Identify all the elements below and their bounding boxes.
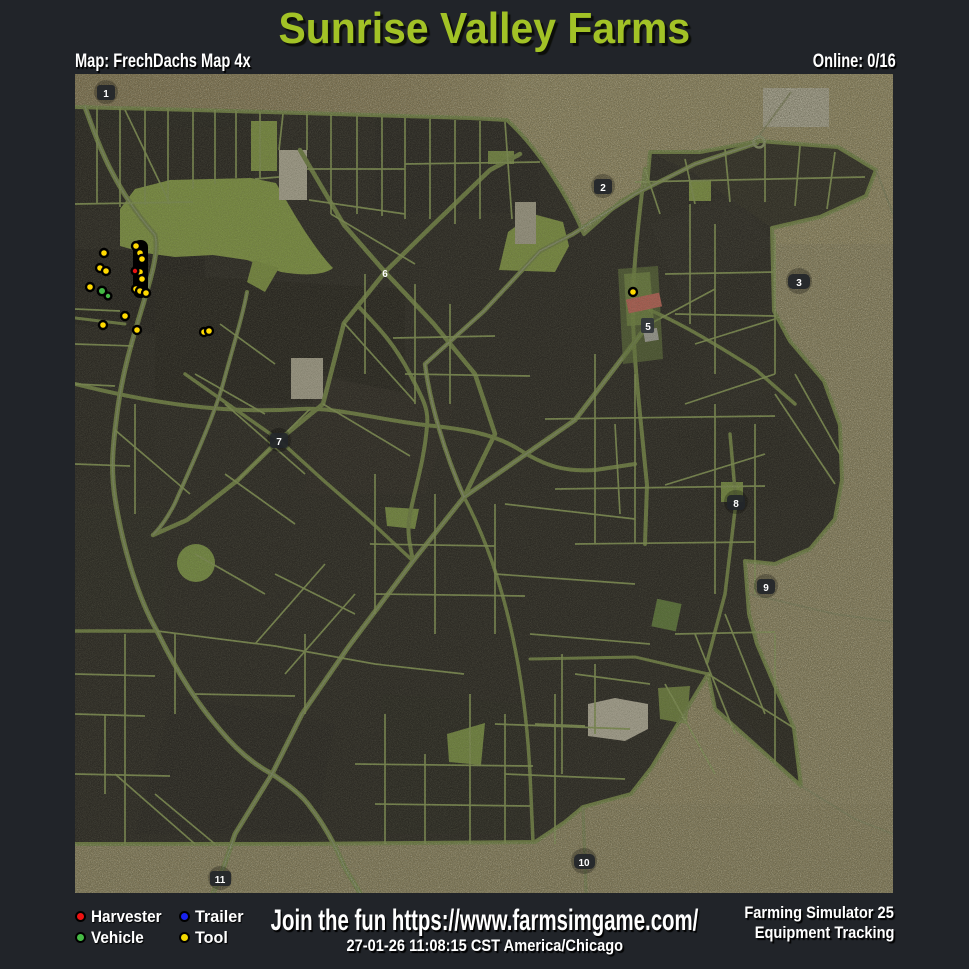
svg-text:9: 9 [763, 583, 769, 594]
svg-text:2: 2 [600, 183, 606, 194]
svg-text:8: 8 [733, 499, 739, 510]
svg-text:7: 7 [276, 437, 282, 448]
svg-text:3: 3 [796, 278, 802, 289]
svg-text:11: 11 [215, 875, 226, 886]
svg-text:10: 10 [578, 858, 590, 869]
svg-text:6: 6 [382, 269, 388, 280]
svg-text:1: 1 [103, 89, 109, 100]
svg-text:5: 5 [645, 322, 651, 333]
